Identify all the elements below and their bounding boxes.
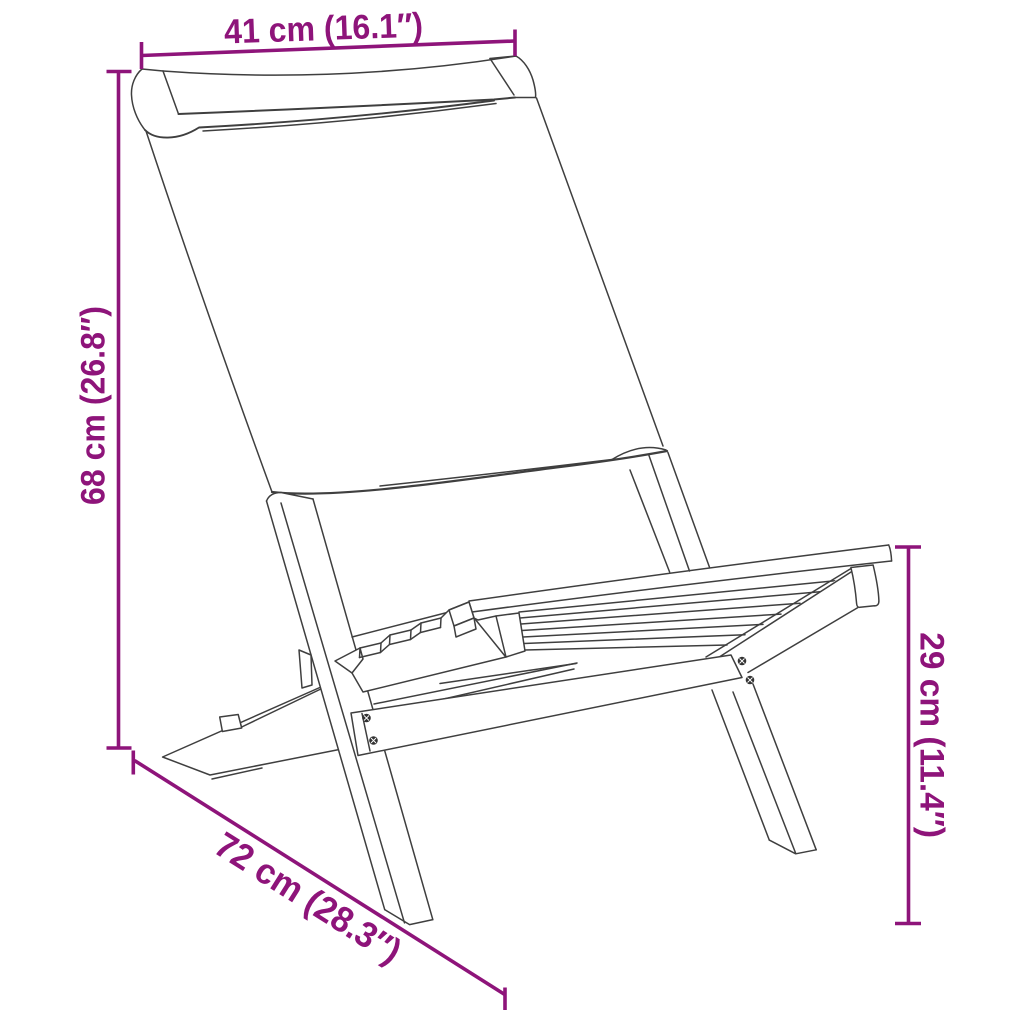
svg-text:29 cm (11.4″): 29 cm (11.4″): [912, 632, 951, 838]
svg-text:68 cm (26.8″): 68 cm (26.8″): [74, 306, 112, 505]
svg-text:41 cm (16.1″): 41 cm (16.1″): [223, 7, 423, 52]
